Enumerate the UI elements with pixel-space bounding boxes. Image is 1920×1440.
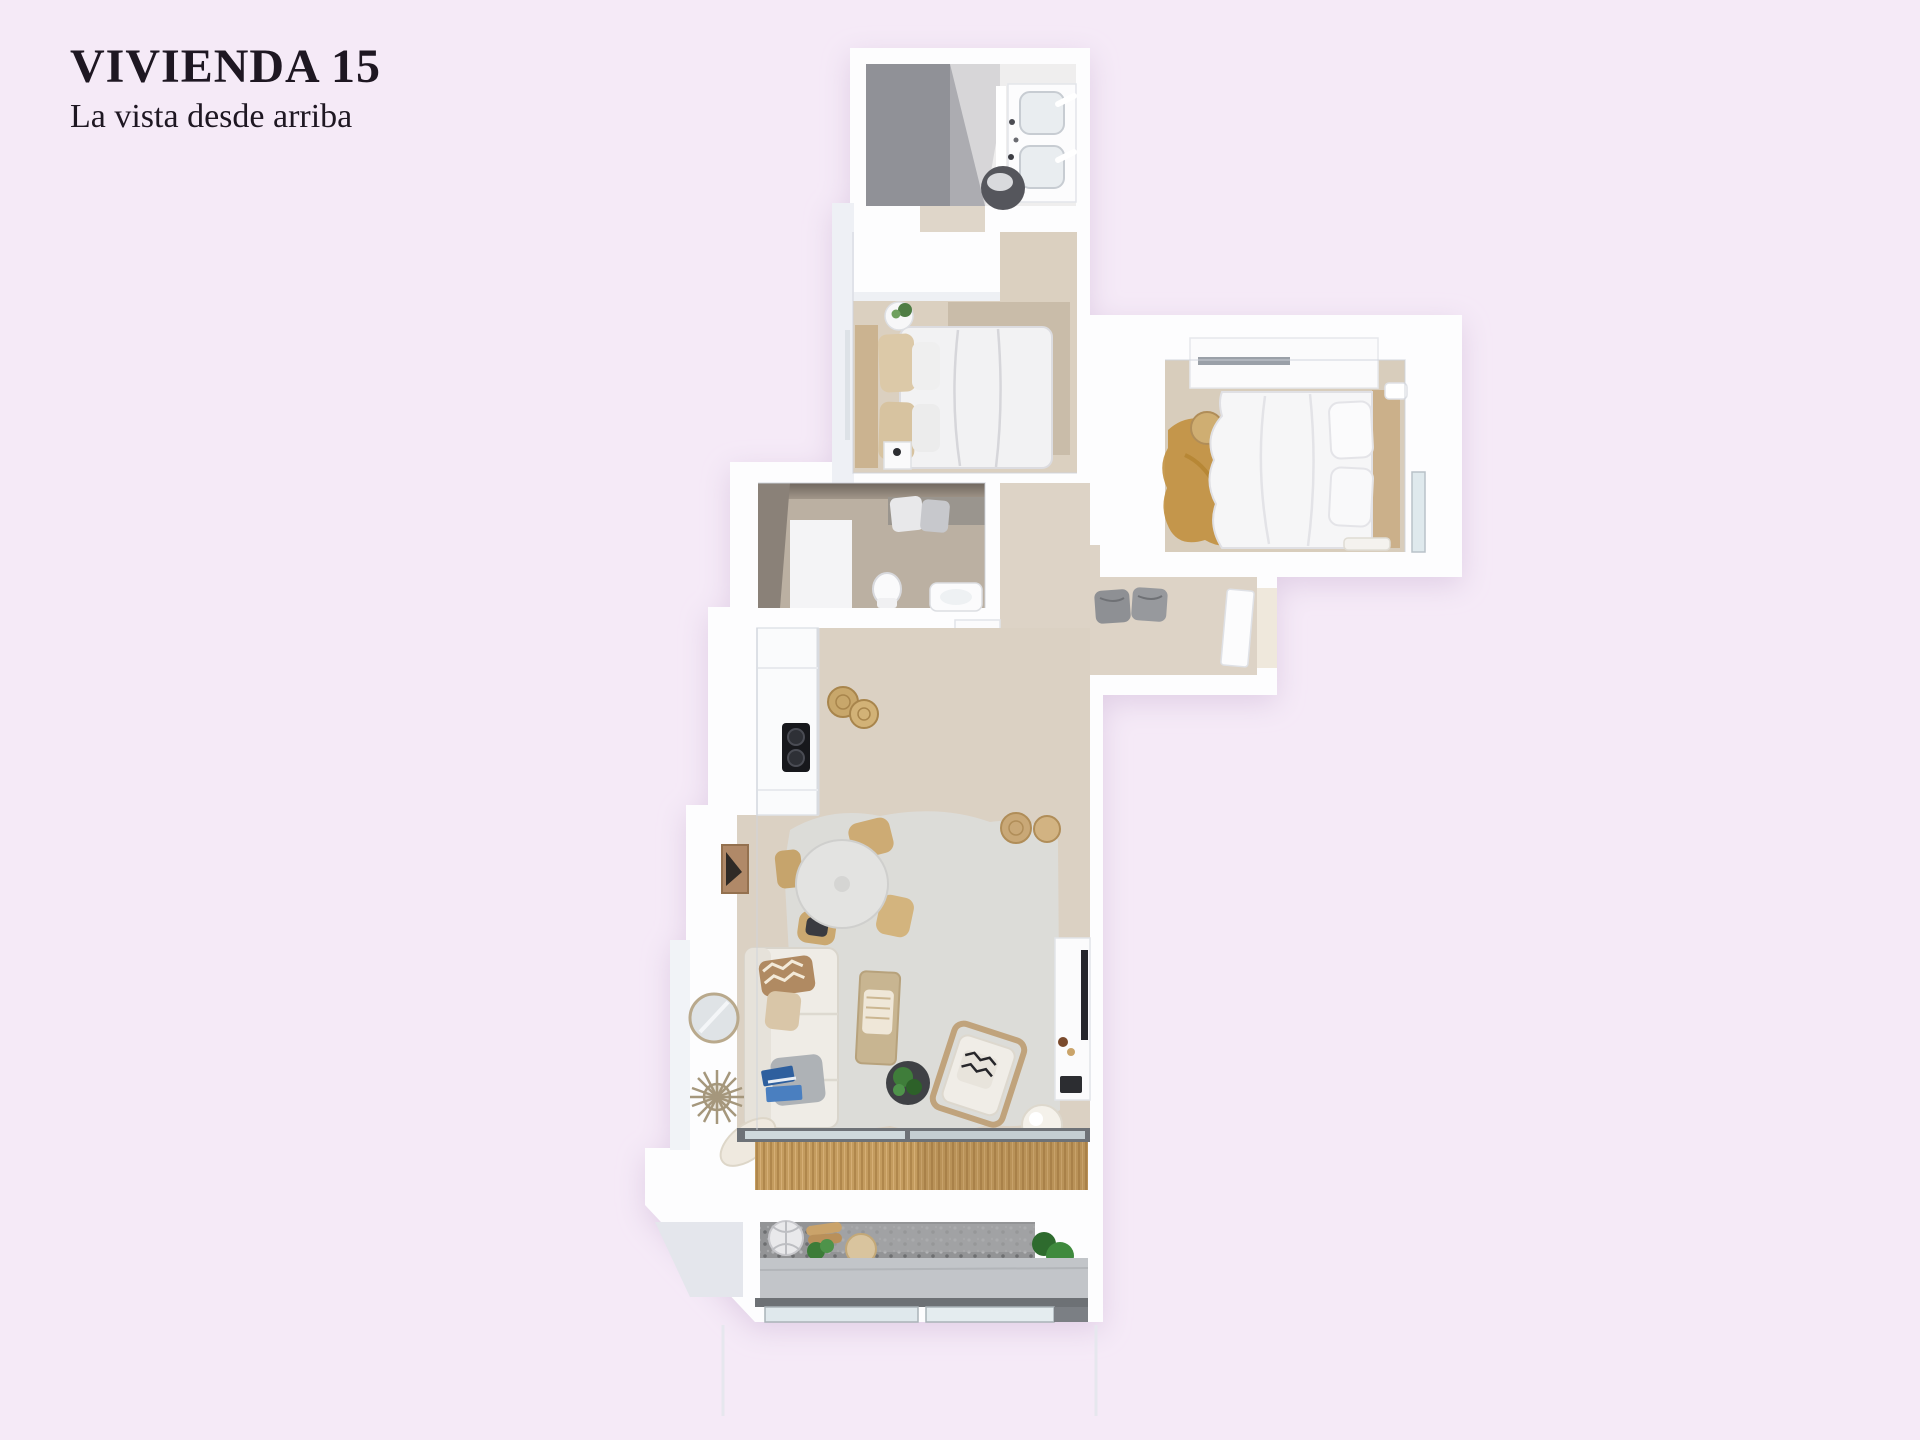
wardrobe-track — [1198, 357, 1290, 365]
bathroom-2 — [758, 483, 985, 611]
page-title: VIVIENDA 15 — [70, 42, 381, 92]
sliding-glass-1 — [745, 1131, 905, 1139]
plant-coffee-table-leaf — [906, 1079, 922, 1095]
vanity-basin-1 — [1020, 92, 1064, 134]
glass-panel-2 — [926, 1307, 1054, 1322]
bed1-pillow-1 — [878, 333, 917, 393]
table-pedestal — [834, 876, 850, 892]
wicker-pendant-2 — [850, 700, 878, 728]
sliding-glass-2 — [910, 1131, 1085, 1139]
bed1-pillow-3 — [912, 342, 940, 390]
burner-2 — [788, 750, 804, 766]
wall-shade-left-lower — [670, 940, 690, 1150]
page: VIVIENDA 15 La vista desde arriba — [0, 0, 1920, 1440]
washbasin-bowl — [940, 589, 972, 605]
bed2-pillow-2 — [1329, 467, 1374, 527]
tv — [1081, 950, 1088, 1040]
bed2-bench — [1344, 538, 1390, 550]
console-tray — [1060, 1076, 1082, 1093]
title-block: VIVIENDA 15 La vista desde arriba — [70, 42, 381, 136]
sunburst-mirror — [690, 1070, 744, 1124]
plant-coffee-table-leaf — [893, 1084, 905, 1096]
bed2-lamp — [1385, 383, 1407, 399]
vanity-basin-2 — [1020, 146, 1064, 188]
books-blue-2 — [766, 1085, 803, 1102]
cosmetic-item — [1009, 119, 1015, 125]
bedroom-2 — [1162, 338, 1425, 552]
bed1-pillow-4 — [912, 404, 940, 452]
console-vase — [1067, 1048, 1075, 1056]
stump-stool-2 — [1034, 816, 1060, 842]
burner-1 — [788, 729, 804, 745]
plant-top-leaf — [892, 310, 901, 319]
page-subtitle: La vista desde arriba — [70, 98, 381, 135]
glass-panel-1 — [765, 1307, 918, 1322]
bathroom2-partition — [790, 520, 852, 608]
bamboo-mat-dark-half — [918, 1142, 1088, 1190]
hall-pouf-2 — [1131, 587, 1168, 622]
bed2-pillow-1 — [1329, 401, 1374, 459]
bench-throw — [862, 989, 894, 1035]
corridor-floor — [1000, 483, 1090, 547]
kitchen-counter — [757, 628, 818, 815]
bed1-headboard — [855, 325, 878, 468]
balustrade-end — [1054, 1307, 1088, 1322]
bathroom2-wall-face-top — [758, 483, 985, 499]
bedroom1-wall-face-edge — [853, 292, 1000, 301]
entry-door-leaf — [1221, 589, 1255, 667]
console-bottle — [1058, 1037, 1068, 1047]
terrace-walkway — [760, 1258, 1088, 1298]
cosmetic-item — [1008, 154, 1014, 160]
bedroom1-window — [845, 330, 850, 440]
terrace-plant-small-leaf — [820, 1239, 834, 1253]
wall-shade-left-bedroom1 — [832, 203, 854, 483]
towel-2 — [920, 499, 951, 533]
sofa-cushion-beige — [764, 990, 802, 1031]
hall-pouf-1 — [1094, 589, 1131, 624]
sofa-cushion-pattern — [758, 954, 816, 997]
nightstand-decor — [893, 448, 901, 456]
terrace-step-recess — [655, 1222, 743, 1297]
balustrade-rail — [755, 1298, 1088, 1307]
bed2-headboard — [1372, 390, 1400, 548]
towel-1 — [889, 495, 924, 532]
laundry-towel — [987, 173, 1013, 191]
entry-door-gap — [1257, 588, 1277, 668]
cosmetic-item — [1014, 138, 1019, 143]
bedroom2-window — [1412, 472, 1425, 552]
lamp-glow — [1029, 1112, 1043, 1126]
floorplan-svg — [0, 0, 1920, 1440]
stump-stool-1 — [1001, 813, 1031, 843]
toilet-tank — [877, 598, 897, 608]
bathroom-top-door-gap — [920, 206, 985, 232]
